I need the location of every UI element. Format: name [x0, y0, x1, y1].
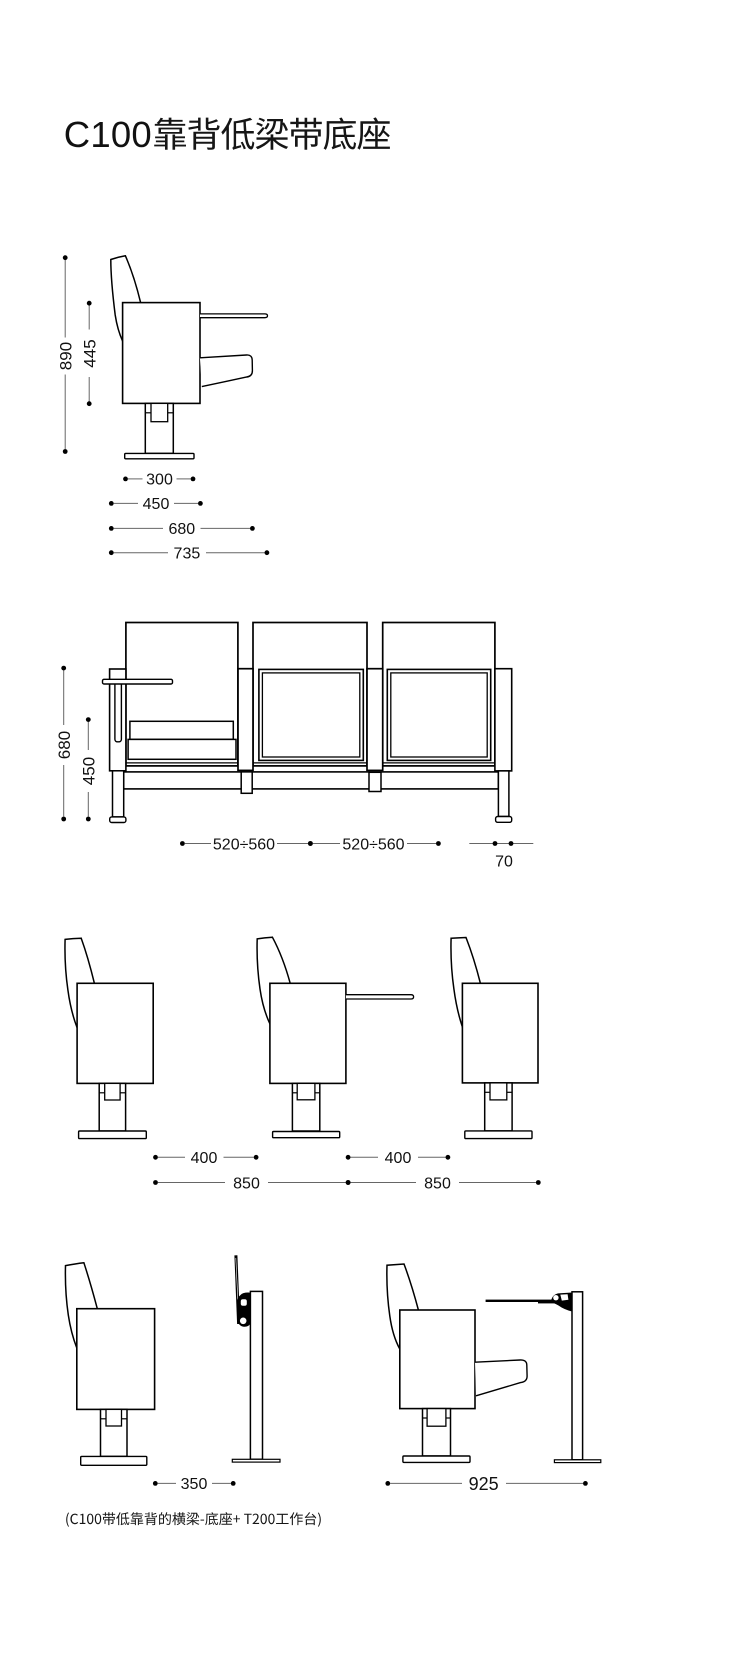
svg-text:520÷560: 520÷560 [213, 836, 275, 853]
svg-text:680: 680 [55, 731, 74, 759]
svg-text:400: 400 [385, 1150, 412, 1167]
svg-text:850: 850 [424, 1175, 451, 1192]
svg-text:C100: C100 [64, 114, 152, 155]
svg-text:850: 850 [233, 1175, 260, 1192]
svg-text:925: 925 [469, 1474, 499, 1494]
svg-text:890: 890 [56, 342, 75, 370]
svg-text:70: 70 [495, 854, 513, 871]
svg-text:520÷560: 520÷560 [342, 836, 404, 853]
svg-text:350: 350 [181, 1476, 208, 1493]
svg-text:400: 400 [191, 1150, 218, 1167]
svg-text:735: 735 [174, 546, 201, 563]
svg-text:680: 680 [168, 521, 195, 538]
svg-text:450: 450 [79, 757, 98, 785]
svg-text:450: 450 [143, 496, 170, 513]
svg-text:300: 300 [146, 472, 173, 489]
svg-text:445: 445 [80, 339, 99, 367]
